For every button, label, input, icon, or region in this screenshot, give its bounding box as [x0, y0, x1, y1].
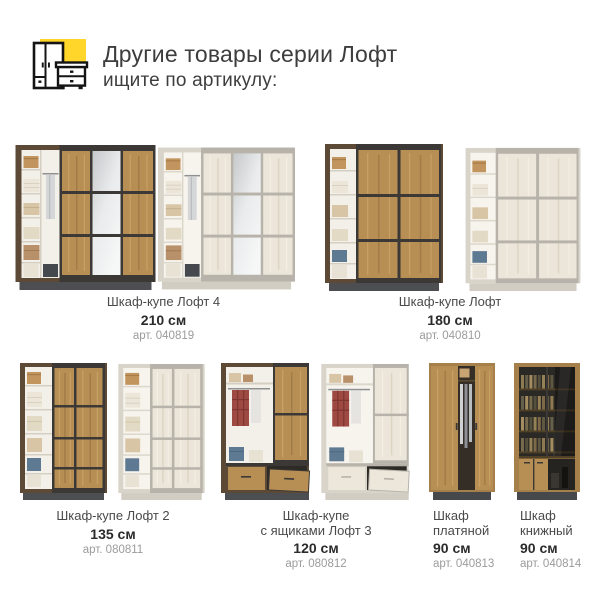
product-image-loft4-dark: [15, 143, 156, 291]
catalog-page: Другие товары серии Лофт ищите по артику…: [0, 0, 600, 600]
product-article: арт. 040810: [330, 330, 570, 343]
product-size: 120 см: [216, 540, 416, 556]
product-name: Шкаф-купе Лофт 4: [15, 295, 312, 310]
product-article: арт. 040819: [15, 330, 312, 343]
product-label-platyanoy: Шкаф платяной 90 см арт. 040813: [433, 509, 523, 571]
product-size: 180 см: [330, 312, 570, 328]
product-name: Шкаф-купе: [216, 509, 416, 524]
product-label-knizhny: Шкаф книжный 90 см арт. 040814: [520, 509, 600, 571]
page-title: Другие товары серии Лофт: [103, 41, 397, 68]
product-image-knizhny: [513, 361, 583, 500]
product-label-loft2: Шкаф-купе Лофт 2 135 см арт. 080811: [13, 509, 213, 557]
product-name-line2: книжный: [520, 524, 600, 539]
product-article: арт. 080811: [13, 544, 213, 557]
product-image-loft2-dark: [20, 361, 107, 500]
product-image-loft3-light: [321, 362, 413, 500]
product-name-line2: с ящиками Лофт 3: [216, 524, 416, 539]
product-image-loft2-light: [118, 362, 205, 500]
product-name-line2: платяной: [433, 524, 523, 539]
product-label-loft: Шкаф-купе Лофт 180 см арт. 040810: [330, 295, 570, 343]
product-article: арт. 040814: [520, 558, 600, 571]
product-label-loft4: Шкаф-купе Лофт 4 210 см арт. 040819: [15, 295, 312, 343]
product-size: 90 см: [433, 540, 523, 556]
product-image-loft3-dark: [221, 361, 313, 500]
page-subtitle: ищите по артикулу:: [103, 70, 277, 92]
product-size: 210 см: [15, 312, 312, 328]
product-name: Шкаф: [520, 509, 600, 524]
product-image-loft4-light: [158, 145, 295, 291]
product-size: 90 см: [520, 540, 600, 556]
product-article: арт. 040813: [433, 558, 523, 571]
product-name: Шкаф-купе Лофт: [330, 295, 570, 310]
product-label-loft3: Шкаф-купе с ящиками Лофт 3 120 см арт. 0…: [216, 509, 416, 571]
product-article: арт. 080812: [216, 558, 416, 571]
product-image-loft-dark: [325, 142, 443, 292]
product-size: 135 см: [13, 526, 213, 542]
product-name: Шкаф: [433, 509, 523, 524]
wardrobe-and-dresser-icon: [31, 36, 89, 93]
product-image-platyanoy: [428, 361, 496, 500]
product-name: Шкаф-купе Лофт 2: [13, 509, 213, 524]
product-image-loft-light: [464, 146, 582, 292]
